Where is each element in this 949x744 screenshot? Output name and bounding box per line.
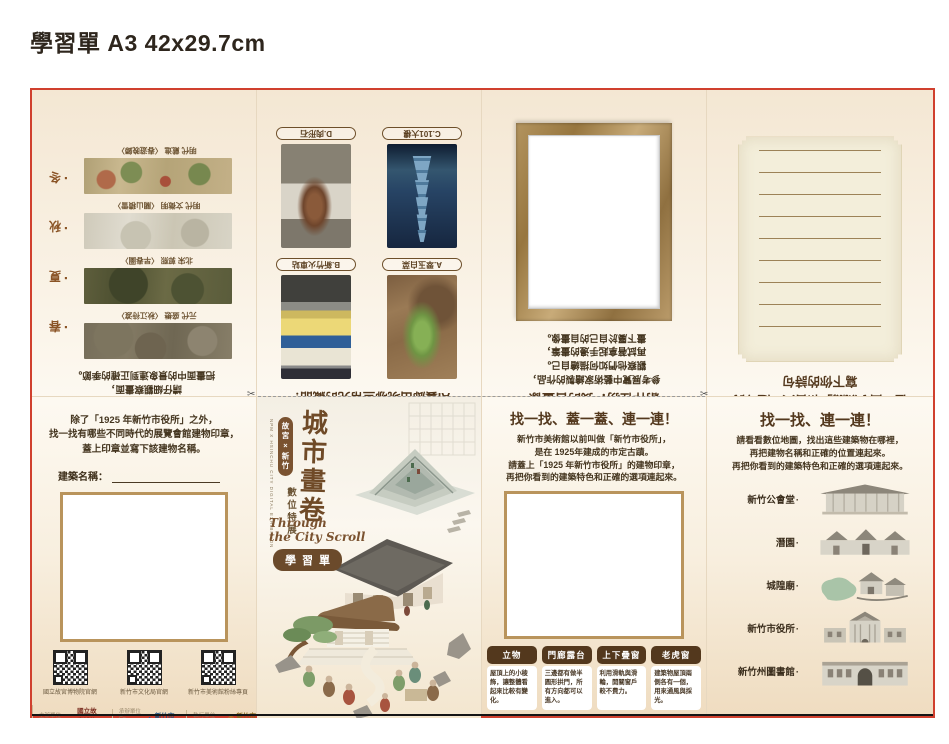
npm-logo-icon: ▲ (67, 716, 75, 718)
city-office-illustration (807, 608, 923, 648)
season-summer: ·夏 (49, 268, 68, 285)
qr-code-icon (128, 651, 161, 684)
panel-ai-gallery: AI藝廊出現哪些常見的藏品？ A.翠玉白菜 B.新竹火車站 C.101大樓 D.… (257, 90, 481, 396)
poem-title: 在「曲水流觴」和古人一起吟詩 寫下你的詩句 (707, 372, 933, 397)
meat-stone-image (281, 144, 351, 248)
scissors-icon: ✂ (247, 389, 255, 400)
season-winter: ·冬 (49, 169, 68, 186)
qr-code-icon (54, 651, 87, 684)
ai-gallery-grid: A.翠玉白菜 B.新竹火車站 C.101大樓 D.肉形石 (257, 127, 481, 379)
fold-line (481, 90, 482, 714)
map-match-title: 找一找、連一連！ (707, 409, 933, 430)
stamp-area (504, 491, 684, 639)
temple-illustration (807, 565, 923, 605)
building-name-field: 建築名稱： (58, 468, 256, 483)
feature-card: 立物 屋頂上的小稜飾，讓整體看起來比較有變化。 (487, 646, 537, 710)
worksheet-tag: 學習單 (273, 549, 342, 571)
season-spring: ·春 (49, 318, 68, 335)
connect-dot: · (796, 538, 799, 549)
artboard-bottom-edge (32, 714, 933, 716)
page-title: 學習單 A3 42x29.7cm (30, 24, 266, 58)
ai-item-b: B.新竹火車站 (270, 258, 362, 379)
drawing-area (528, 135, 660, 309)
panel-map-match: 找一找、連一連！ 請看看數位地圖，找出這些建築物在哪裡， 再把建物名稱和正確的位… (707, 397, 933, 718)
panel-four-seasons: 在這次展覽「四季行旅」中， 請仔細觀察畫面， 把畫面中的景象連到正確的季節。 元… (32, 90, 256, 396)
painting-item: 明代 戴進 〈春遊晚歸〉 (82, 145, 232, 194)
credits-strip: 主辦單位Organizer ▲國立故宮博物院 承辦單位Co-organizer … (32, 705, 256, 718)
cut-line (258, 396, 705, 397)
qr-code-row: 國立故宮博物院官網 新竹市文化局官網 新竹市美術館粉絲專頁 (32, 651, 256, 696)
qr-item: 新竹市文化局官網 (114, 651, 174, 696)
painting-list: 元代 盛懋 〈秋江待渡〉 北宋 郭熙 〈早春圖〉 明代 文徵明 〈關山積雪〉 明… (82, 139, 232, 359)
four-seasons-instruction: 在這次展覽「四季行旅」中， 請仔細觀察畫面， 把畫面中的景象連到正確的季節。 (32, 368, 256, 396)
garden-illustration (807, 522, 923, 562)
train-station-image (281, 275, 351, 379)
feature-cards: 立物 屋頂上的小稜飾，讓整體看起來比較有變化。 門廊露台 三邊都有做半圓形拱門，… (482, 646, 706, 710)
panel-cover: NPM X HSINCHU CITY DIGITAL EXHIBITION 故宮… (257, 397, 481, 718)
picture-frame (516, 123, 672, 321)
building-row: 新竹州圖書館· (707, 651, 933, 691)
connect-dot: · (796, 667, 799, 678)
building-list: 新竹公會堂· 潛園· (707, 479, 933, 691)
stamp-hunt-instruction: 除了「1925 年新竹市役所」之外， 找一找有哪些不同時代的展覽會館建物印章， … (32, 414, 256, 457)
scissors-icon: ✂ (700, 389, 708, 400)
season-list: ·春 ·夏 ·秋 ·冬 (49, 139, 82, 359)
map-match-instruction: 請看看數位地圖，找出這些建築物在哪裡， 再把建物名稱和正確的位置連起來。 再把你… (707, 434, 933, 474)
qr-item: 國立故宮博物院官網 (40, 651, 100, 696)
panel-poem: 在「曲水流觴」和古人一起吟詩 寫下你的詩句 (707, 90, 933, 396)
tower-101-image (387, 144, 457, 248)
writing-paper (738, 137, 902, 363)
ai-item-c: C.101大樓 (376, 127, 468, 248)
painting-item: 北宋 郭熙 〈早春圖〉 (82, 255, 232, 304)
museum-logo-icon: ❂ (228, 716, 235, 718)
painting-thumbnail (84, 213, 232, 249)
feature-match-title: 找一找、蓋一蓋、連一連！ (482, 409, 706, 429)
building-row: 潛園· (707, 522, 933, 562)
feature-card: 老虎窗 建築物屋頂兩側各有一個，用來通風與採光。 (651, 646, 701, 710)
cover-title: 城市畫卷 (291, 408, 332, 525)
cover-badge: 故宮×新竹 (278, 417, 293, 476)
qr-item: 新竹市美術館粉絲專頁 (188, 651, 248, 696)
fold-line (256, 90, 257, 714)
feature-card: 門廊露台 三邊都有做半圓形拱門，所有方向都可以進入。 (542, 646, 592, 710)
feature-match-instruction: 新竹市美術館以前叫做「新竹市役所」， 是在 1925年建成的市定古蹟。 請蓋上「… (482, 433, 706, 484)
panel-feature-match: 找一找、蓋一蓋、連一連！ 新竹市美術館以前叫做「新竹市役所」， 是在 1925年… (482, 397, 706, 718)
writing-lines (759, 151, 881, 349)
connect-dot: · (796, 495, 799, 506)
panel-self-portrait: 創作任務：我的自畫像 參考展覽中藝術家繪製的作品， 觀察他們如何描繪自己。 再試… (482, 90, 706, 396)
stamp-area (60, 492, 228, 642)
answer-blank-line (112, 472, 220, 483)
library-illustration (807, 651, 923, 691)
painting-item: 明代 文徵明 〈關山積雪〉 (82, 200, 232, 249)
panel-stamp-hunt: 除了「1925 年新竹市役所」之外， 找一找有哪些不同時代的展覽會館建物印章， … (32, 397, 256, 718)
building-row: 新竹市役所· (707, 608, 933, 648)
city-logo-icon: ◆ (147, 716, 153, 718)
fold-line (706, 90, 707, 714)
cover-script-title: Through the City Scroll (269, 517, 365, 545)
worksheet-board: 在這次展覽「四季行旅」中， 請仔細觀察畫面， 把畫面中的景象連到正確的季節。 元… (30, 88, 935, 718)
public-hall-illustration (807, 479, 923, 519)
season-autumn: ·秋 (49, 218, 68, 235)
connect-dot: · (796, 581, 799, 592)
building-row: 城隍廟· (707, 565, 933, 605)
jade-cabbage-image (387, 275, 457, 379)
ai-item-d: D.肉形石 (270, 127, 362, 248)
qr-code-icon (202, 651, 235, 684)
painting-thumbnail (84, 268, 232, 304)
ai-item-a: A.翠玉白菜 (376, 258, 468, 379)
building-row: 新竹公會堂· (707, 479, 933, 519)
self-portrait-instruction: 參考展覽中藝術家繪製的作品， 觀察他們如何描繪自己。 再試著拿起手邊的畫筆， 畫… (482, 330, 706, 385)
connect-dot: · (796, 624, 799, 635)
painting-item: 元代 盛懋 〈秋江待渡〉 (82, 310, 232, 359)
ai-gallery-title: AI藝廊出現哪些常見的藏品？ (257, 389, 481, 396)
painting-thumbnail (84, 158, 232, 194)
painting-thumbnail (84, 323, 232, 359)
credit-organizer: 主辦單位Organizer ▲國立故宮博物院 (32, 705, 103, 718)
feature-card: 上下疊窗 利用滑軌與滑輪，開關窗戶較不費力。 (597, 646, 647, 710)
